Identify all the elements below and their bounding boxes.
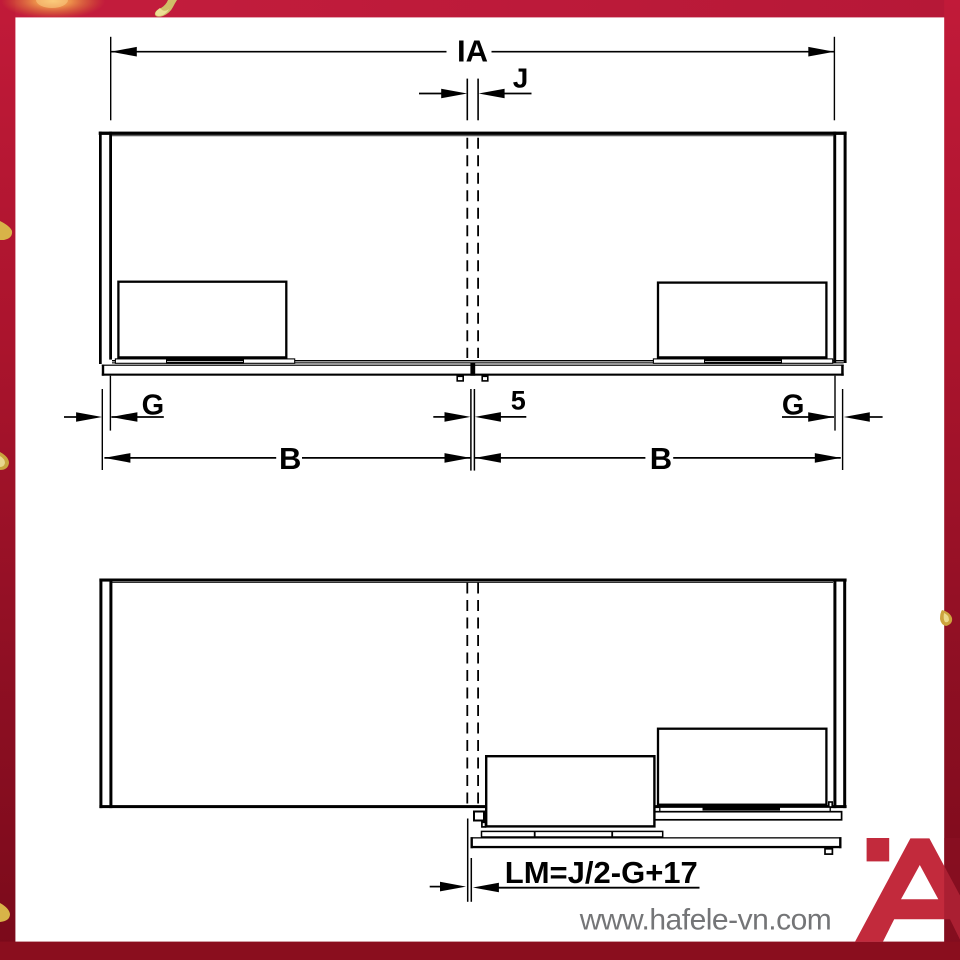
svg-text:J: J [513, 62, 529, 93]
svg-text:G: G [142, 389, 165, 421]
svg-text:B: B [279, 441, 301, 476]
svg-text:IA: IA [457, 34, 488, 69]
svg-text:LM=J/2-G+17: LM=J/2-G+17 [505, 855, 698, 890]
svg-text:G: G [782, 389, 805, 421]
svg-text:B: B [650, 441, 672, 476]
svg-text:5: 5 [511, 386, 526, 416]
svg-text:www.hafele-vn.com: www.hafele-vn.com [579, 904, 832, 937]
